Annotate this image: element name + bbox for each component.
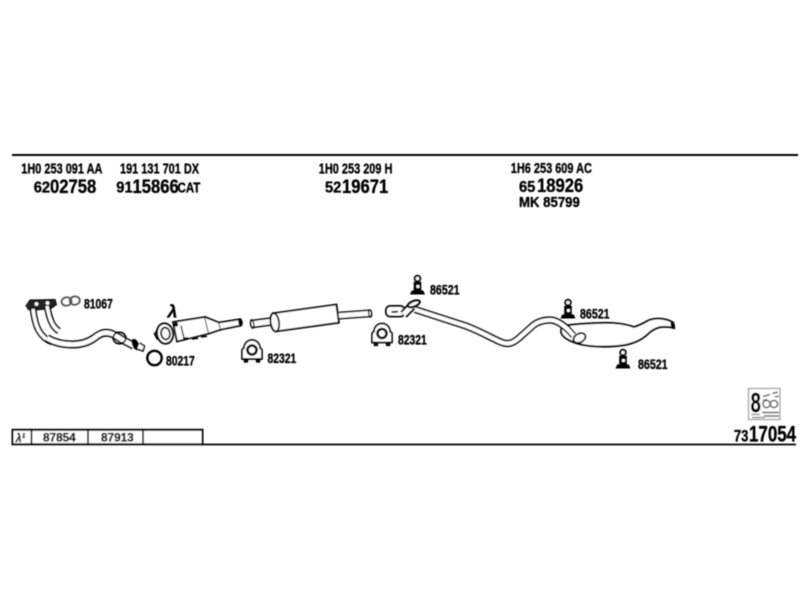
- svg-text:1H6 253 609 AC: 1H6 253 609 AC: [511, 159, 593, 176]
- svg-text:17054: 17054: [749, 423, 796, 448]
- svg-text:73: 73: [734, 427, 749, 446]
- svg-text:87913: 87913: [101, 430, 134, 444]
- svg-text:86521: 86521: [580, 306, 610, 322]
- svg-text:86521: 86521: [430, 282, 460, 298]
- svg-text:CAT: CAT: [178, 179, 202, 196]
- svg-text:87854: 87854: [43, 430, 76, 444]
- svg-text:91: 91: [116, 179, 133, 197]
- svg-text:λ¹: λ¹: [15, 432, 26, 445]
- svg-text:62: 62: [34, 179, 50, 197]
- svg-text:81067: 81067: [84, 296, 113, 312]
- svg-text:52: 52: [325, 179, 341, 197]
- svg-text:λ: λ: [166, 302, 177, 322]
- svg-text:80217: 80217: [166, 353, 195, 369]
- svg-text:19671: 19671: [342, 176, 388, 197]
- svg-text:191 131 701 DX: 191 131 701 DX: [120, 160, 199, 177]
- svg-text:82321: 82321: [268, 350, 297, 366]
- svg-text:86521: 86521: [638, 357, 668, 373]
- svg-text:15866: 15866: [133, 176, 179, 197]
- svg-text:02758: 02758: [50, 176, 96, 197]
- svg-text:82321: 82321: [398, 332, 427, 348]
- svg-text:MK 85799: MK 85799: [519, 193, 580, 210]
- svg-text:1H0 253 209 H: 1H0 253 209 H: [319, 160, 393, 177]
- svg-text:1H0 253 091 AA: 1H0 253 091 AA: [21, 160, 103, 177]
